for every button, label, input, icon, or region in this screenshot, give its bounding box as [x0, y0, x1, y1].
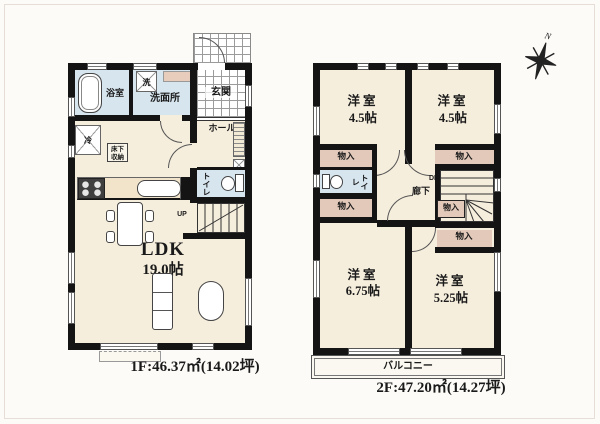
- bedroom4-size: 5.25帖: [421, 292, 481, 306]
- window: [494, 252, 501, 292]
- window: [417, 63, 429, 70]
- fridge-space: 冷: [75, 125, 101, 155]
- window: [385, 63, 397, 70]
- window: [87, 63, 107, 70]
- wall: [183, 233, 245, 239]
- window: [245, 278, 252, 326]
- window: [313, 106, 320, 136]
- window: [410, 348, 462, 355]
- window: [68, 145, 75, 158]
- underfloor-storage: 床下収納: [107, 143, 128, 162]
- chair: [145, 231, 154, 243]
- room-toilet-2f-label: トイレ: [358, 171, 368, 193]
- low-table: [198, 281, 224, 321]
- bedroom4-label: 洋室: [421, 275, 481, 289]
- room-entrance-label: 玄関: [205, 87, 237, 98]
- bedroom3-size: 6.75帖: [333, 285, 393, 299]
- room-toilet-1f-label: トイレ: [200, 171, 210, 197]
- wall: [190, 168, 197, 203]
- kitchen-sink: [137, 180, 181, 197]
- entrance-opening: [198, 63, 225, 70]
- window: [68, 97, 75, 117]
- wall: [75, 115, 160, 121]
- closet-label: 物入: [437, 204, 465, 213]
- window: [68, 252, 75, 284]
- chair: [106, 210, 115, 222]
- window: [348, 348, 400, 355]
- toilet-fixture: [235, 174, 244, 192]
- sofa: [152, 273, 173, 330]
- room-bath-label: 浴室: [99, 89, 131, 99]
- room-washroom-label: 洗面所: [139, 93, 191, 104]
- compass-north-label: N: [543, 30, 553, 42]
- window: [494, 178, 501, 192]
- window: [494, 104, 501, 134]
- wall: [372, 144, 377, 223]
- chair: [145, 210, 154, 222]
- floor1-caption: 1F:46.37㎡(14.02坪): [95, 359, 295, 376]
- washer-space: 洗: [136, 71, 157, 92]
- window: [447, 63, 459, 70]
- closet-label: 物入: [439, 152, 489, 161]
- floor2-caption: 2F:47.20㎡(14.27坪): [341, 380, 541, 397]
- window: [192, 343, 214, 350]
- window: [245, 85, 252, 107]
- closet-label: 物入: [326, 152, 366, 161]
- floor-plan-image: 洗 浴室 洗面所 冷 床下収納 玄関 ホール トイレ UP LDK 19.0帖: [0, 0, 600, 424]
- washroom-counter: [163, 71, 191, 82]
- bedroom2-size: 4.5帖: [423, 112, 483, 126]
- closet-label: 物入: [326, 202, 366, 211]
- shoe-cabinet: [233, 122, 245, 157]
- window: [133, 63, 157, 70]
- window: [357, 63, 369, 70]
- bedroom2-label: 洋室: [423, 95, 483, 109]
- toilet-fixture: [322, 174, 330, 189]
- entrance-step: [197, 117, 245, 121]
- closet-label: 物入: [439, 232, 489, 241]
- dining-table: [117, 202, 143, 246]
- balcony-label: バルコニー: [358, 361, 458, 372]
- wall: [405, 220, 412, 348]
- window: [100, 343, 158, 350]
- stairs-up-1f: [197, 203, 245, 233]
- wall: [435, 222, 494, 228]
- bedroom1-size: 4.5帖: [333, 112, 393, 126]
- wall: [320, 217, 372, 223]
- window: [313, 260, 320, 298]
- compass-icon: N: [517, 26, 567, 88]
- toilet-bowl: [330, 175, 343, 189]
- wall: [435, 247, 494, 253]
- chair: [106, 231, 115, 243]
- window: [68, 292, 75, 324]
- bedroom3-label: 洋室: [333, 269, 393, 283]
- bedroom1-label: 洋室: [333, 95, 393, 109]
- stairs-up-label: UP: [172, 211, 192, 218]
- toilet-bowl: [221, 176, 235, 191]
- wall: [190, 70, 197, 143]
- wall: [181, 177, 190, 200]
- stove: [78, 178, 105, 199]
- window: [313, 174, 320, 188]
